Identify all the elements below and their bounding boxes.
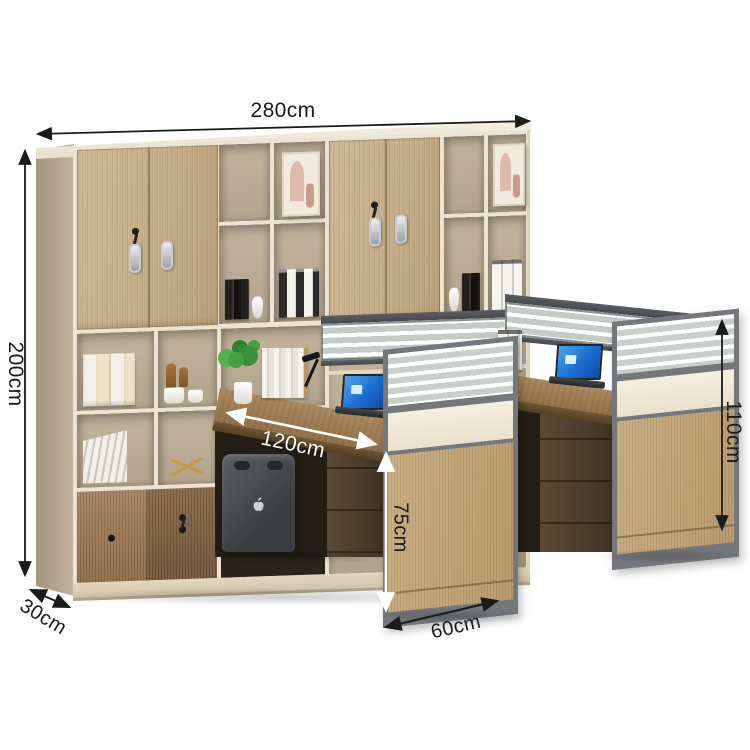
door-knob-icon	[108, 535, 115, 542]
bottle-decor	[166, 363, 176, 389]
desk-lamp	[300, 352, 320, 396]
tower-handle	[234, 461, 250, 470]
plant-pot	[234, 382, 252, 404]
dim-overall-width-label: 280cm	[228, 99, 338, 123]
key-in-lock-icon	[371, 201, 378, 208]
upper-cabinet-doors-right	[329, 137, 440, 321]
books-decor	[225, 279, 249, 320]
pot-decor	[188, 389, 203, 403]
sliding-door	[77, 489, 146, 582]
lamp-arm	[304, 359, 319, 388]
panel-seam	[617, 524, 734, 538]
cubby-art	[488, 134, 526, 212]
art-print	[493, 143, 525, 206]
key-in-lock-icon	[179, 514, 186, 521]
upper-cabinet-doors-left	[77, 145, 218, 330]
floor-shadow	[215, 550, 395, 564]
cubby-art	[274, 141, 325, 220]
cubby-books	[219, 224, 270, 324]
cubby-empty	[219, 143, 270, 222]
sliding-door	[146, 487, 217, 580]
art-print	[282, 151, 320, 216]
bottle-decor	[179, 367, 188, 387]
shelf-bottles	[158, 329, 217, 408]
cabinet-side-panel	[36, 144, 74, 600]
cubby-empty	[444, 136, 484, 214]
binders-decor	[83, 353, 135, 407]
door-handle-icon	[369, 217, 381, 246]
product-dimension-image: 280cm 200cm 30cm 120cm 75cm 60cm 110cm	[0, 0, 750, 750]
tower-handle	[267, 461, 283, 470]
pot-decor	[164, 387, 184, 404]
laptop-screen	[341, 374, 390, 410]
sliding-door-cabinet	[77, 487, 217, 583]
vase-decor	[449, 288, 459, 312]
vase-decor	[252, 296, 263, 318]
door-handle-icon	[129, 244, 141, 273]
computer-tower	[222, 454, 295, 552]
door-handle-icon	[395, 214, 407, 243]
plant-foliage	[228, 352, 244, 368]
door-handle-icon	[161, 241, 173, 270]
potted-plant	[222, 352, 244, 368]
dim-overall-height-label: 200cm	[3, 319, 27, 429]
dim-desk-height-label: 75cm	[389, 473, 412, 583]
laptop-screen	[555, 344, 604, 380]
panel-wood-band	[617, 409, 734, 554]
books-decor	[83, 430, 127, 484]
apple-logo-icon	[249, 494, 269, 516]
books-decor	[462, 273, 480, 312]
cubby-binders	[274, 222, 325, 322]
binders-decor	[279, 268, 319, 317]
cubby-vase-binders	[444, 217, 484, 316]
shelf-leaning-books	[77, 412, 154, 488]
partition-panel-2	[612, 309, 739, 570]
shelf-binders	[77, 331, 154, 411]
key-in-lock-icon	[132, 228, 139, 235]
floor-shadow	[595, 548, 745, 564]
shelf-gold-sculpture	[158, 410, 217, 485]
laptop-2	[556, 344, 605, 386]
dim-screen-height-label: 110cm	[721, 377, 745, 487]
gold-sculpture-decor	[170, 455, 204, 476]
